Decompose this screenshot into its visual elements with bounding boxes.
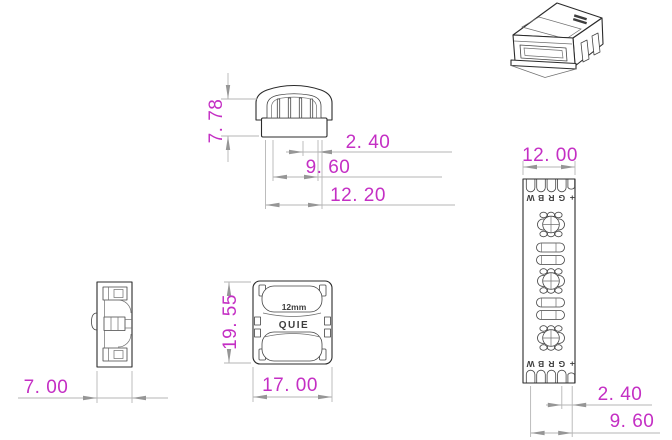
arrowhead [266, 203, 280, 207]
side-top-slot [103, 287, 127, 300]
dim-strip-pad-span-label: 9. 60 [610, 411, 655, 432]
strip-led-1 [538, 212, 565, 237]
arrowhead [273, 175, 287, 179]
arrowhead [227, 282, 231, 296]
iso-bottom-lip [511, 60, 576, 78]
dimension-front-height: 7. 78 [206, 73, 259, 162]
dimension-top-width: 17. 00 [253, 367, 332, 402]
dim-top-width-label: 17. 00 [262, 375, 318, 396]
led-strip-view: W B R G + [523, 179, 575, 383]
strip-resistor-1 [537, 243, 565, 252]
arrowhead [289, 150, 303, 154]
dim-strip-width-label: 12. 00 [522, 145, 578, 166]
strip-led-2 [538, 269, 565, 294]
connector-drawing: 7. 78 2. 40 9. 60 12. 20 [0, 0, 672, 440]
side-view [92, 282, 133, 367]
top-lens-lower [262, 332, 322, 361]
technical-drawing-canvas: 7. 78 2. 40 9. 60 12. 20 [0, 0, 672, 440]
top-view: 12mm QUIE [253, 281, 332, 364]
pad-label: W [526, 193, 535, 203]
front-base-plate [262, 118, 328, 137]
pad-label: W [526, 359, 535, 369]
pad-label: + [570, 193, 575, 203]
arrowhead [132, 396, 146, 400]
dimension-strip-width: 12. 00 [522, 145, 578, 175]
front-view [256, 86, 332, 138]
arrowhead [572, 403, 586, 407]
dim-strip-pad-pitch-label: 2. 40 [598, 384, 643, 405]
arrowhead [226, 85, 230, 99]
arrowhead [531, 431, 545, 435]
pad-label: R [548, 359, 554, 369]
dim-front-slot-span-label: 9. 60 [306, 157, 351, 178]
arrowhead [318, 150, 332, 154]
strip-resistor-3 [537, 298, 565, 307]
strip-resistor-4 [537, 311, 565, 320]
pad-label: B [538, 359, 544, 369]
dimension-top-length: 19. 55 [220, 282, 251, 363]
dim-top-length-label: 19. 55 [220, 294, 241, 350]
arrowhead [308, 203, 322, 207]
dim-front-opening-width-label: 12. 20 [330, 185, 386, 206]
pad-label: G [558, 193, 565, 203]
arrowhead [83, 396, 97, 400]
pad-label: B [538, 193, 544, 203]
dim-side-width-label: 7. 00 [24, 377, 69, 398]
side-bottom-slot [103, 348, 127, 361]
marking-size-label: 12mm [282, 302, 307, 312]
arrowhead [318, 395, 332, 399]
arrowhead [558, 431, 572, 435]
marking-brand-label: QUIE [279, 320, 309, 331]
arrowhead [548, 403, 562, 407]
pad-label: R [548, 193, 554, 203]
dimension-side-width: 7. 00 [18, 371, 168, 403]
pad-label: + [570, 359, 575, 369]
strip-led-3 [538, 326, 565, 351]
dim-front-height-label: 7. 78 [206, 99, 227, 144]
dim-front-slot-pitch-label: 2. 40 [346, 132, 391, 153]
pad-label: G [558, 359, 565, 369]
isometric-view [511, 3, 603, 78]
iso-opening [520, 45, 567, 61]
side-left-bump [92, 313, 98, 330]
arrowhead [227, 349, 231, 363]
strip-resistor-2 [537, 256, 565, 265]
